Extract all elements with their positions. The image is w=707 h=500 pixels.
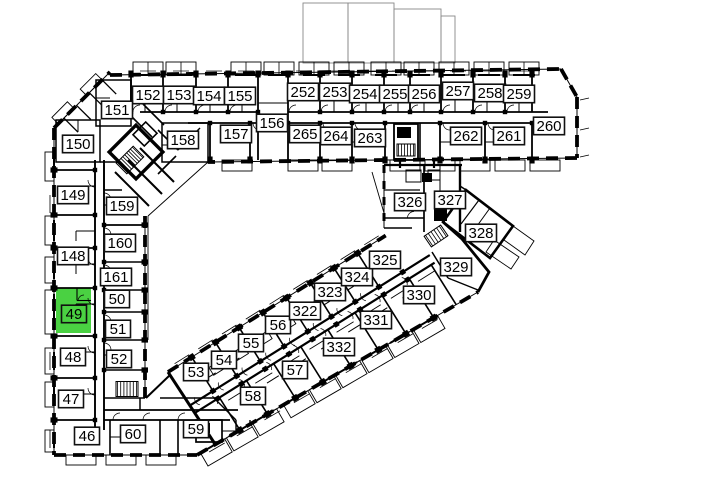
svg-text:47: 47 — [63, 391, 80, 408]
svg-text:159: 159 — [109, 198, 134, 215]
svg-text:323: 323 — [317, 284, 342, 301]
svg-text:264: 264 — [323, 128, 348, 145]
svg-text:156: 156 — [259, 115, 284, 132]
svg-text:53: 53 — [188, 364, 205, 381]
svg-text:152: 152 — [135, 87, 160, 104]
svg-text:328: 328 — [468, 225, 493, 242]
svg-text:148: 148 — [60, 248, 85, 265]
svg-text:261: 261 — [496, 128, 521, 145]
svg-text:324: 324 — [344, 269, 369, 286]
svg-text:258: 258 — [477, 85, 502, 102]
svg-text:56: 56 — [270, 317, 287, 334]
svg-text:154: 154 — [196, 88, 221, 105]
svg-text:322: 322 — [292, 303, 317, 320]
svg-text:332: 332 — [326, 339, 351, 356]
svg-text:265: 265 — [292, 126, 317, 143]
svg-text:263: 263 — [357, 130, 382, 147]
svg-text:160: 160 — [107, 235, 132, 252]
svg-text:46: 46 — [79, 428, 96, 445]
svg-text:256: 256 — [411, 86, 436, 103]
svg-text:326: 326 — [397, 194, 422, 211]
svg-text:153: 153 — [166, 87, 191, 104]
svg-text:161: 161 — [103, 269, 128, 286]
svg-text:325: 325 — [372, 252, 397, 269]
svg-text:49: 49 — [66, 306, 83, 323]
svg-text:60: 60 — [125, 426, 142, 443]
svg-text:255: 255 — [382, 86, 407, 103]
svg-text:252: 252 — [290, 84, 315, 101]
svg-text:54: 54 — [216, 352, 233, 369]
svg-text:157: 157 — [223, 126, 248, 143]
svg-text:50: 50 — [109, 291, 126, 308]
svg-text:52: 52 — [111, 351, 128, 368]
svg-text:262: 262 — [453, 128, 478, 145]
svg-text:51: 51 — [110, 321, 127, 338]
svg-text:260: 260 — [536, 118, 561, 135]
svg-text:254: 254 — [352, 86, 377, 103]
svg-text:259: 259 — [506, 86, 531, 103]
svg-text:331: 331 — [363, 312, 388, 329]
svg-text:149: 149 — [60, 187, 85, 204]
svg-text:329: 329 — [443, 259, 468, 276]
svg-text:327: 327 — [437, 192, 462, 209]
svg-text:330: 330 — [406, 287, 431, 304]
svg-text:48: 48 — [65, 349, 82, 366]
svg-text:155: 155 — [227, 88, 252, 105]
svg-text:59: 59 — [188, 421, 205, 438]
svg-text:257: 257 — [445, 83, 470, 100]
svg-text:55: 55 — [243, 335, 260, 352]
svg-text:253: 253 — [322, 84, 347, 101]
svg-text:151: 151 — [104, 102, 129, 119]
svg-text:158: 158 — [170, 132, 195, 149]
svg-text:150: 150 — [65, 136, 90, 153]
svg-text:57: 57 — [287, 362, 304, 379]
svg-text:58: 58 — [245, 388, 262, 405]
